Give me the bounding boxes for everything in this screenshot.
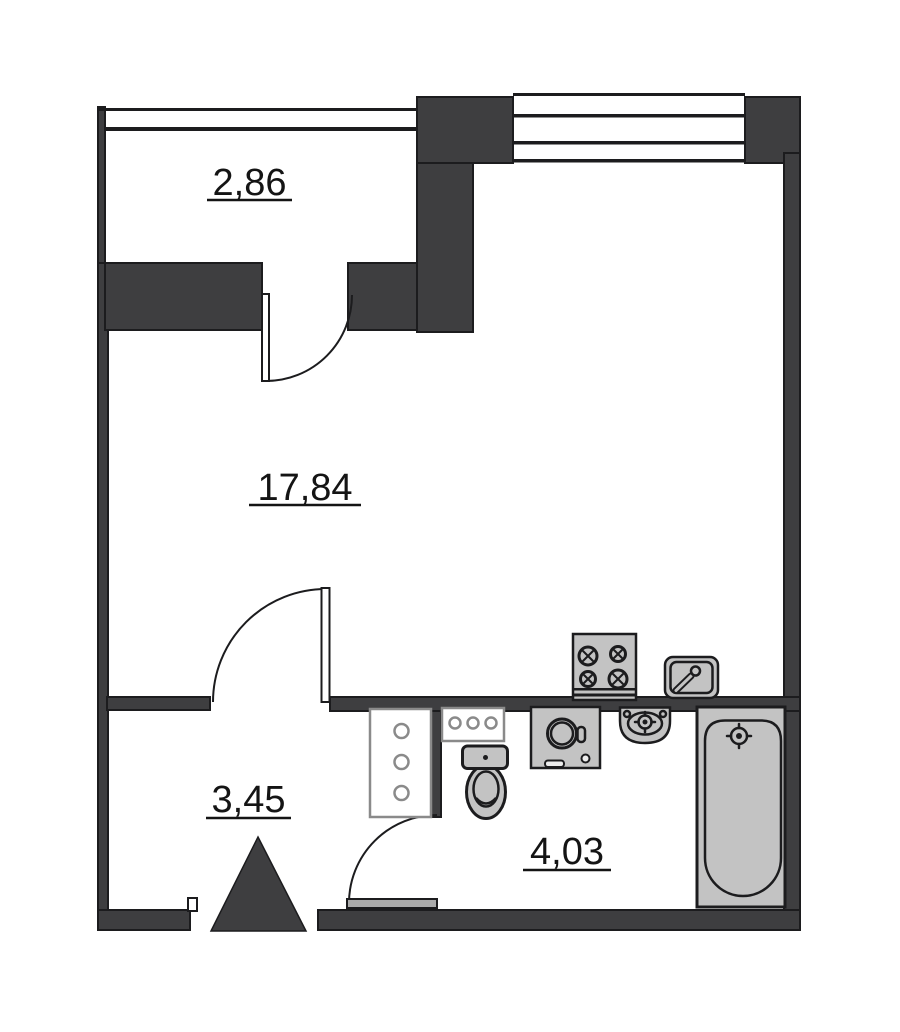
balcony-bottom-wall-left — [105, 263, 262, 330]
stove-front-line — [573, 694, 636, 697]
toilet-bowl — [467, 766, 506, 819]
shelf-hole — [450, 718, 461, 729]
window-line-1 — [513, 93, 745, 96]
door-swing-icon — [349, 815, 437, 903]
balcony-left-wall — [98, 107, 105, 265]
shelf-hole — [486, 718, 497, 729]
balcony-glazing-inner-line — [104, 127, 417, 131]
faucet-base — [691, 667, 700, 676]
entrance — [188, 837, 306, 931]
stove-burner — [611, 647, 626, 662]
balcony-glazing-outer-line — [98, 108, 417, 111]
hall-door — [213, 588, 330, 702]
window-left-pier — [417, 97, 513, 163]
stove-front-line — [573, 688, 636, 691]
stove-burner — [581, 672, 596, 687]
floor-plan-canvas: 2,86 17,84 3,45 4,03 — [0, 0, 900, 1032]
washing-machine-icon — [531, 707, 600, 768]
window-line-2 — [513, 114, 745, 118]
window-line-4 — [513, 159, 745, 163]
bathtub-icon — [697, 707, 785, 907]
basin-screw — [660, 711, 666, 717]
wash-basin-icon — [620, 708, 670, 744]
basin-screw — [624, 711, 630, 717]
stove-burner — [609, 670, 627, 688]
balcony-door-leaf — [262, 294, 269, 381]
balcony-right-wall — [417, 163, 473, 332]
left-wall — [98, 263, 108, 930]
entry-door-jamb — [188, 898, 197, 911]
shelf-hole — [395, 724, 409, 738]
door-swing-icon — [266, 295, 352, 381]
bottom-wall-right — [318, 910, 800, 930]
bathroom-area-label: 4,03 — [530, 831, 604, 873]
balcony-area-label: 2,86 — [213, 162, 287, 204]
entrance-arrow-icon — [211, 837, 306, 931]
walls — [98, 97, 800, 930]
door-swing-icon — [213, 589, 326, 702]
toilet-icon — [463, 746, 508, 819]
stove-icon — [573, 634, 636, 700]
balcony-door — [262, 294, 352, 381]
bottom-wall-left — [98, 910, 190, 930]
hallway-area-label: 3,45 — [212, 779, 286, 821]
toilet-flush-button — [483, 755, 488, 760]
bathroom-door-leaf — [347, 899, 437, 908]
bathroom-door — [347, 815, 437, 908]
window-line-3 — [513, 141, 745, 145]
mid-wall-left — [107, 697, 210, 710]
stove-burner — [579, 647, 597, 665]
shelf-column-icon — [370, 709, 431, 817]
shelf-hole — [395, 755, 409, 769]
shelf-panel-icon — [442, 708, 504, 741]
balcony-bottom-wall-right — [348, 263, 417, 330]
washer-detergent-tray — [545, 761, 564, 768]
balcony-glazing — [98, 108, 417, 131]
floor-plan: 2,86 17,84 3,45 4,03 — [0, 0, 900, 1032]
shelf-hole — [468, 718, 479, 729]
living-room-area-label: 17,84 — [257, 467, 352, 509]
shelf-hole — [395, 786, 409, 800]
window-icon — [513, 93, 745, 163]
washer-knob — [582, 755, 590, 763]
hall-door-leaf — [322, 588, 330, 702]
washer-door-handle — [578, 727, 586, 742]
kitchen-sink-icon — [665, 657, 718, 698]
